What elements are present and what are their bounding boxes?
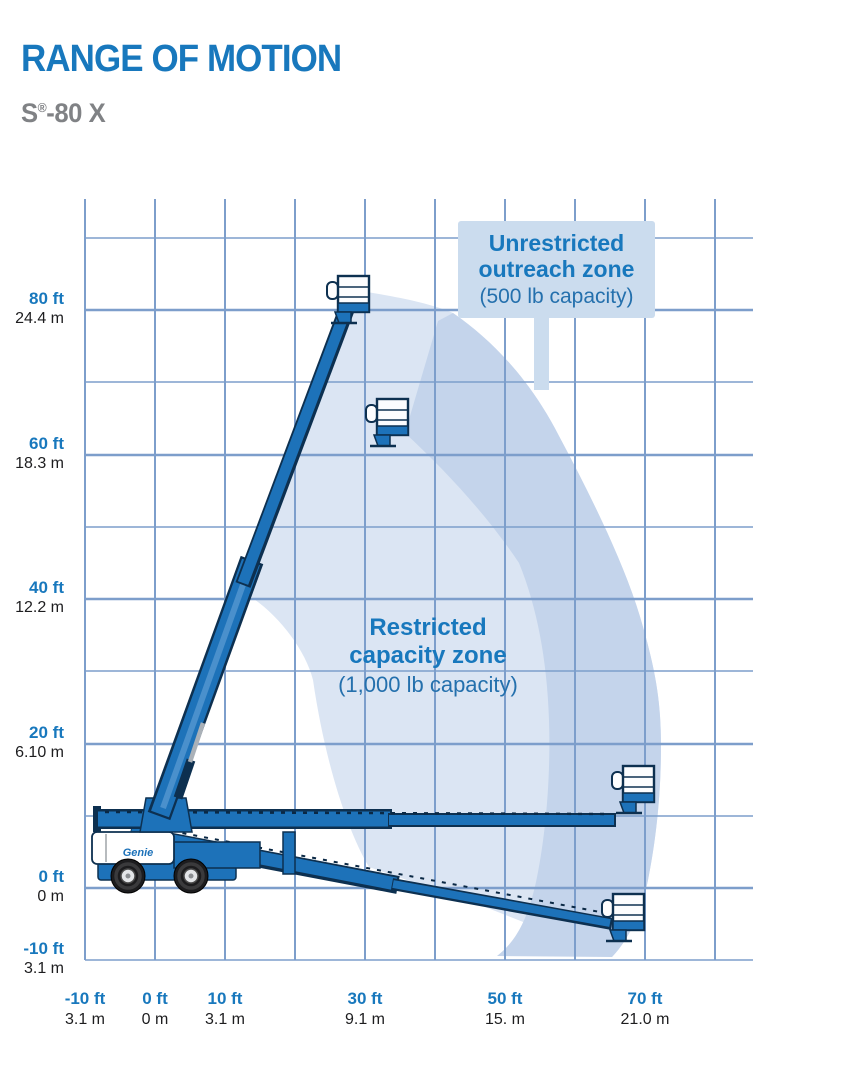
- model-suffix: -80 X: [46, 98, 105, 128]
- unrestricted-line1: Unrestricted: [489, 230, 624, 256]
- restricted-line1: Restricted: [316, 614, 540, 642]
- tick-ft-label: 70 ft: [600, 988, 690, 1009]
- tick-m-label: 0 m: [0, 887, 64, 907]
- label-callout-strip: [534, 316, 549, 390]
- model-name: S®-80 X: [21, 98, 105, 129]
- y-axis-tick: 40 ft12.2 m: [0, 578, 64, 618]
- y-axis-tick: 20 ft6.10 m: [0, 723, 64, 763]
- tick-m-label: 12.2 m: [0, 598, 64, 618]
- tick-ft-label: 40 ft: [0, 578, 64, 598]
- tick-ft-label: 10 ft: [180, 988, 270, 1009]
- diagram-canvas: Genie: [0, 0, 844, 1068]
- genie-logo: Genie: [123, 847, 154, 859]
- y-axis-tick: -10 ft3.1 m: [0, 939, 64, 979]
- range-of-motion-diagram: Genie: [0, 0, 844, 1068]
- tick-ft-label: 20 ft: [0, 723, 64, 743]
- page-title: RANGE OF MOTION: [21, 38, 341, 81]
- tick-m-label: 3.1 m: [180, 1009, 270, 1030]
- y-axis-tick: 80 ft24.4 m: [0, 289, 64, 329]
- tick-m-label: 24.4 m: [0, 309, 64, 329]
- tick-m-label: 9.1 m: [320, 1009, 410, 1030]
- unrestricted-zone-label: Unrestricted outreach zone (500 lb capac…: [458, 221, 655, 318]
- restricted-line2: capacity zone: [316, 642, 540, 670]
- tick-ft-label: 30 ft: [320, 988, 410, 1009]
- unrestricted-line2: outreach zone: [479, 256, 635, 282]
- tick-ft-label: -10 ft: [0, 939, 64, 959]
- tick-m-label: 3.1 m: [0, 959, 64, 979]
- restricted-zone-label: Restricted capacity zone (1,000 lb capac…: [316, 614, 540, 698]
- registered-mark: ®: [38, 100, 47, 115]
- x-axis-tick: 30 ft9.1 m: [320, 988, 410, 1030]
- x-axis-tick: 50 ft15. m: [460, 988, 550, 1030]
- y-axis-tick: 60 ft18.3 m: [0, 434, 64, 474]
- y-axis-tick: 0 ft0 m: [0, 867, 64, 907]
- tick-m-label: 21.0 m: [600, 1009, 690, 1030]
- tick-m-label: 15. m: [460, 1009, 550, 1030]
- tick-ft-label: 60 ft: [0, 434, 64, 454]
- tick-ft-label: 50 ft: [460, 988, 550, 1009]
- tick-m-label: 18.3 m: [0, 454, 64, 474]
- tick-ft-label: 0 ft: [0, 867, 64, 887]
- restricted-capacity: (1,000 lb capacity): [316, 671, 540, 698]
- tick-m-label: 6.10 m: [0, 743, 64, 763]
- x-axis-tick: 10 ft3.1 m: [180, 988, 270, 1030]
- unrestricted-capacity: (500 lb capacity): [479, 284, 633, 309]
- x-axis-tick: 70 ft21.0 m: [600, 988, 690, 1030]
- model-prefix: S: [21, 98, 38, 128]
- tick-ft-label: 80 ft: [0, 289, 64, 309]
